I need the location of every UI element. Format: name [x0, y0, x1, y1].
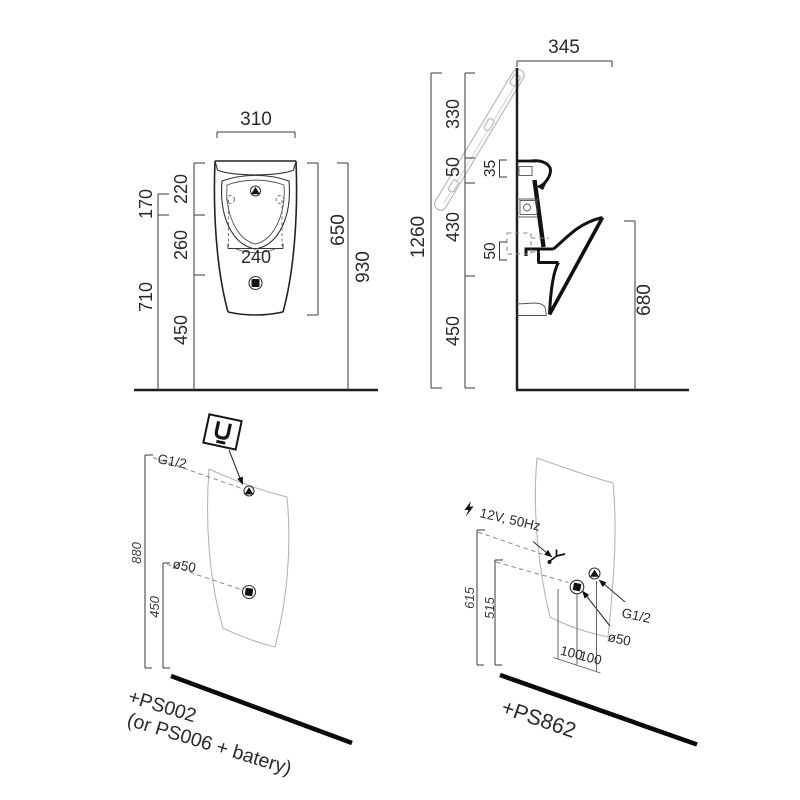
dim-680: 680: [634, 284, 655, 316]
front-urinal-body: [214, 161, 296, 315]
mount-cutout-dashed: [227, 196, 285, 247]
install-right-dimensions: 615 515: [462, 530, 503, 665]
dim-260: 260: [171, 230, 191, 260]
inlet-point-right: [589, 568, 600, 579]
dim-50-upper: 50: [443, 157, 463, 177]
install-right-outline: [535, 458, 615, 637]
dim-450-install: 450: [147, 595, 162, 617]
dim-50-outlet: 50: [482, 242, 499, 260]
install-left: G1/2 ø50 880 450 +PS002 (or PS006 + bate…: [125, 414, 352, 779]
label-inlet-right: G1/2: [620, 605, 652, 626]
kit-code-right: +PS862: [498, 695, 579, 743]
dim-430: 430: [443, 212, 463, 242]
dim-1260: 1260: [408, 216, 429, 258]
dim-220: 220: [171, 174, 191, 204]
side-view: 345 1260 330 50 430 450 35 50 680: [408, 37, 689, 390]
front-view: 310 240 220 260 450 170 710 650 930: [134, 109, 378, 390]
dim-170: 170: [136, 189, 156, 219]
dim-515: 515: [482, 596, 497, 618]
dim-930: 930: [353, 251, 374, 283]
dim-100-b: 100: [578, 648, 603, 668]
lightning-icon: [465, 501, 474, 517]
dim-615: 615: [462, 586, 477, 608]
spec-sheet: 310 240 220 260 450 170 710 650 930: [0, 0, 800, 800]
flush-plate-arrow: [229, 450, 243, 485]
dim-345: 345: [548, 37, 580, 58]
label-power: 12V, 50Hz: [478, 505, 542, 534]
offset-dimensions: 100 100: [554, 581, 604, 673]
water-inlet-icon: [251, 186, 261, 196]
inlet-point: [244, 486, 254, 496]
dim-310: 310: [240, 109, 272, 130]
flush-plate-icon: [203, 414, 241, 449]
drain-icon: [249, 277, 262, 290]
install-left-dimensions: 880 450: [129, 455, 170, 668]
dim-240: 240: [241, 247, 271, 267]
power-connector-icon: [548, 550, 566, 565]
dim-880: 880: [129, 541, 144, 563]
front-dimensions: 310 240 220 260 450 170 710 650 930: [136, 109, 374, 390]
dim-330: 330: [443, 99, 463, 129]
side-section: [507, 161, 603, 316]
kit-alt-left: (or PS006 + batery): [125, 709, 295, 780]
install-right: 12V, 50Hz G1/2 ø50: [462, 458, 697, 745]
dim-450-front: 450: [171, 315, 191, 345]
dim-650: 650: [328, 214, 349, 246]
side-dimensions: 345 1260 330 50 430 450 35 50 680: [408, 37, 655, 390]
technical-drawing: 310 240 220 260 450 170 710 650 930: [0, 0, 800, 800]
dim-35: 35: [482, 160, 499, 177]
dim-450-side: 450: [443, 316, 463, 346]
label-drain-left: ø50: [171, 556, 197, 575]
power-label-group: 12V, 50Hz: [465, 501, 553, 558]
label-drain-right: ø50: [606, 629, 632, 649]
label-inlet-left: G1/2: [156, 451, 188, 471]
drain-point: [243, 586, 256, 599]
drain-point-right: [570, 580, 584, 594]
cover-lid: [432, 67, 526, 212]
dim-710: 710: [136, 282, 156, 312]
inlet-callout-right: G1/2: [599, 580, 653, 627]
